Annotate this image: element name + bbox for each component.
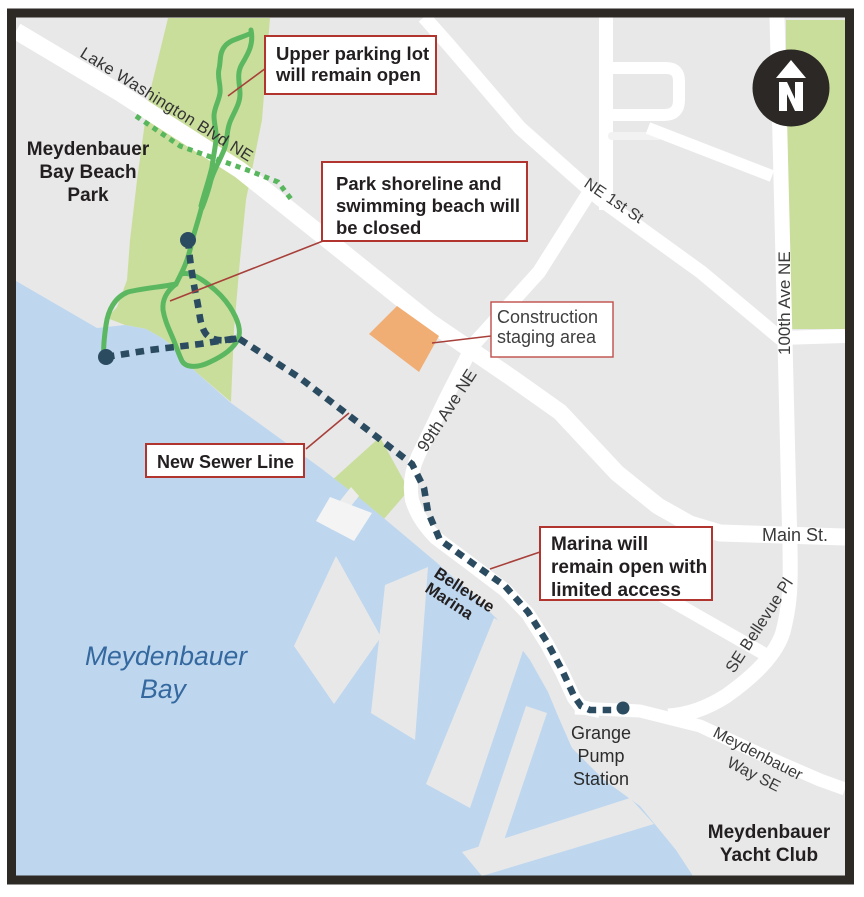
svg-text:New Sewer Line: New Sewer Line — [157, 452, 294, 472]
svg-text:Main St.: Main St. — [762, 525, 828, 545]
svg-text:limited access: limited access — [551, 580, 681, 601]
svg-text:remain open with: remain open with — [551, 557, 707, 578]
svg-text:Meydenbauer: Meydenbauer — [85, 641, 248, 671]
svg-text:be closed: be closed — [336, 217, 421, 238]
svg-text:100th Ave NE: 100th Ave NE — [775, 251, 794, 355]
svg-text:staging area: staging area — [497, 327, 597, 347]
svg-text:Bay: Bay — [140, 674, 187, 704]
svg-text:Marina will: Marina will — [551, 534, 648, 555]
svg-text:Bay Beach: Bay Beach — [39, 162, 136, 183]
svg-text:Meydenbauer: Meydenbauer — [708, 822, 831, 843]
svg-text:Park: Park — [67, 185, 109, 206]
svg-text:Meydenbauer: Meydenbauer — [27, 139, 150, 160]
svg-text:swimming beach will: swimming beach will — [336, 195, 520, 216]
svg-text:Grange: Grange — [571, 723, 631, 743]
svg-text:Yacht Club: Yacht Club — [720, 845, 818, 866]
svg-text:Upper parking lot: Upper parking lot — [276, 43, 429, 64]
svg-text:Station: Station — [573, 769, 629, 789]
svg-text:Pump: Pump — [577, 746, 624, 766]
svg-text:Park shoreline and: Park shoreline and — [336, 173, 502, 194]
svg-text:Construction: Construction — [497, 307, 598, 327]
svg-text:will remain open: will remain open — [275, 64, 421, 85]
